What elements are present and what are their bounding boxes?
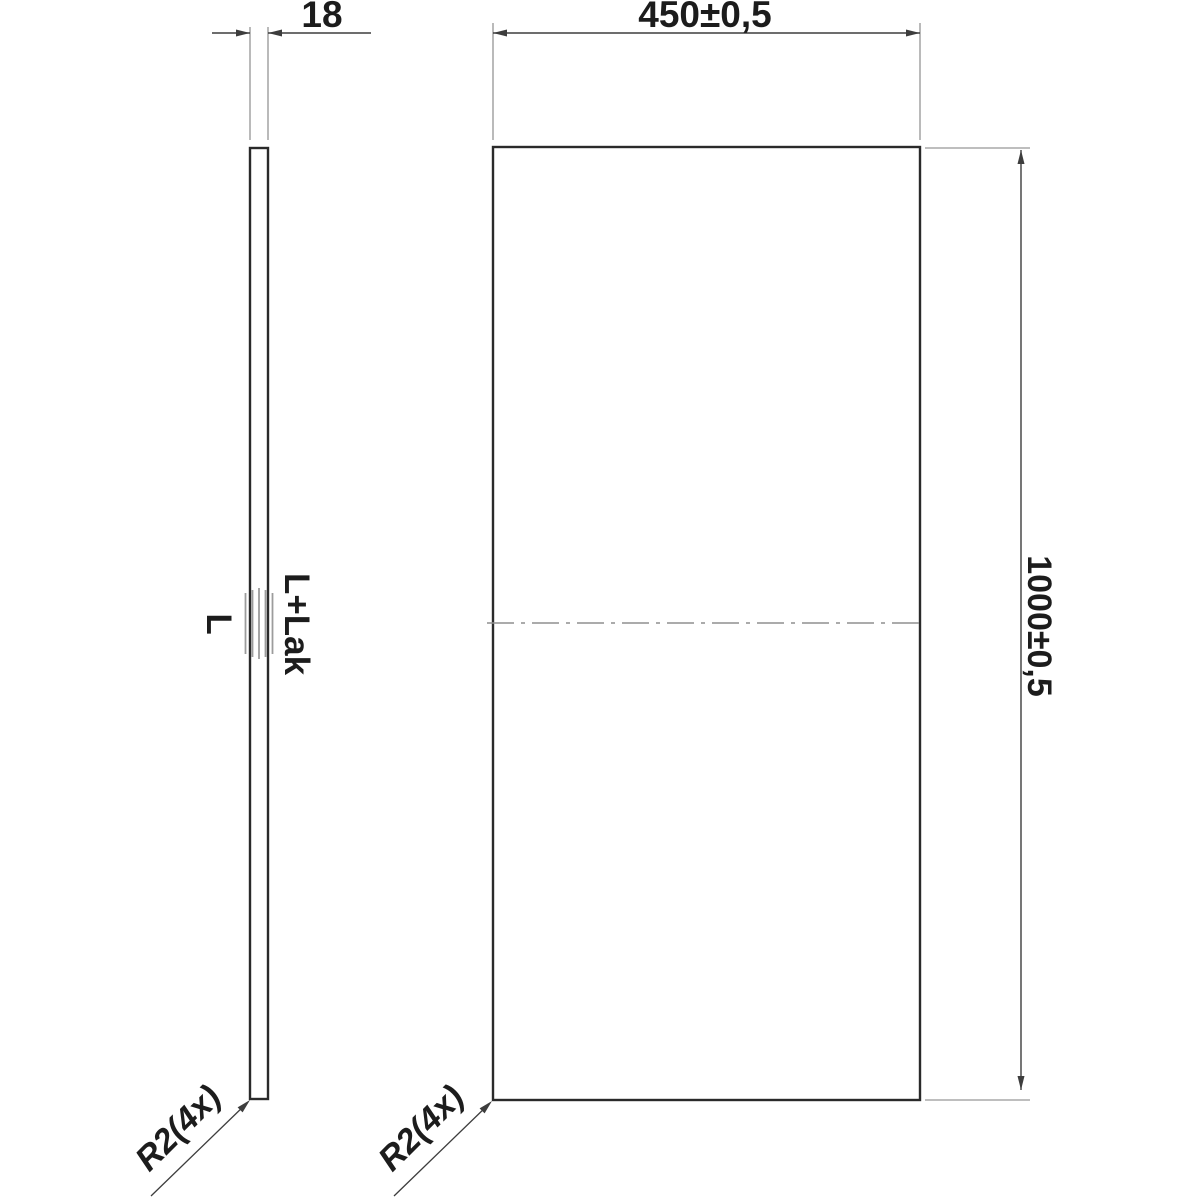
- arrowhead-icon: [236, 30, 250, 37]
- arrowhead-icon: [1018, 1076, 1025, 1090]
- width-dimension-label: 450±0,5: [638, 0, 771, 35]
- drawing-svg: 18 L L+Lak R2(4x): [0, 0, 1200, 1200]
- thickness-dimension: 18: [212, 0, 371, 140]
- thickness-dimension-label: 18: [301, 0, 342, 35]
- arrowhead-icon: [1018, 150, 1025, 164]
- radius-callout-side-label: R2(4x): [128, 1078, 228, 1178]
- width-dimension: 450±0,5: [493, 0, 920, 140]
- side-view: 18 L L+Lak R2(4x): [128, 0, 371, 1196]
- radius-callout-side: R2(4x): [128, 1078, 250, 1196]
- radius-callout-front-label: R2(4x): [371, 1078, 471, 1178]
- technical-drawing-panel: 18 L L+Lak R2(4x): [0, 0, 1200, 1200]
- arrowhead-icon: [906, 30, 920, 37]
- height-dimension: 1000±0,5: [925, 148, 1058, 1100]
- arrowhead-icon: [493, 30, 507, 37]
- arrowhead-icon: [268, 30, 282, 37]
- front-view: 450±0,5 1000±0,5 R2(4x): [371, 0, 1058, 1196]
- surface-label-left: L: [199, 613, 238, 634]
- radius-callout-front: R2(4x): [371, 1078, 492, 1196]
- surface-label-right: L+Lak: [277, 573, 316, 676]
- height-dimension-label: 1000±0,5: [1020, 555, 1058, 697]
